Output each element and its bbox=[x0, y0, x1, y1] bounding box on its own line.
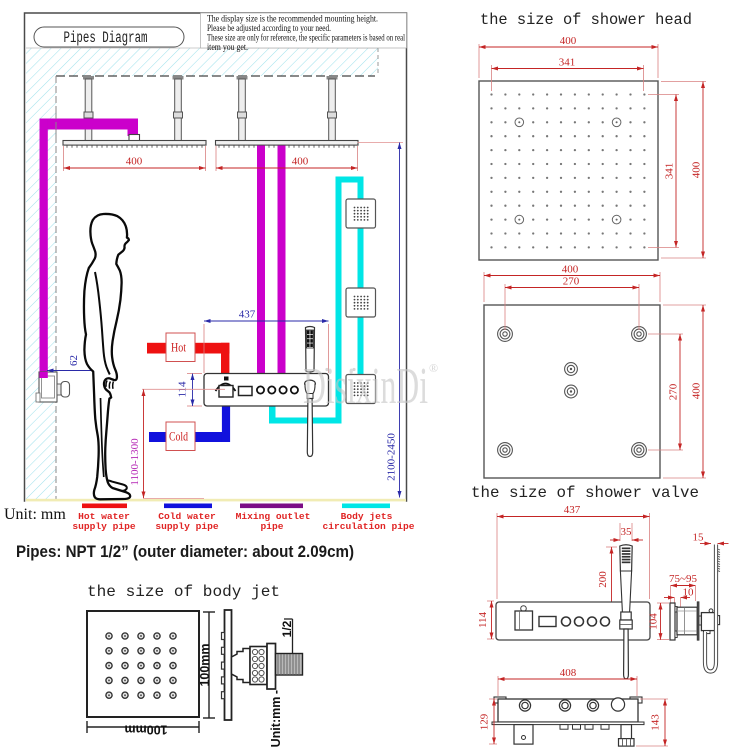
svg-text:supply pipe: supply pipe bbox=[72, 521, 136, 532]
svg-text:Cold: Cold bbox=[169, 430, 189, 444]
svg-text:15: 15 bbox=[693, 532, 705, 544]
svg-text:pipe: pipe bbox=[260, 521, 283, 532]
svg-text:400: 400 bbox=[560, 35, 577, 47]
svg-text:1/2: 1/2 bbox=[280, 620, 294, 637]
svg-text:408: 408 bbox=[560, 667, 577, 679]
svg-text:Unit: mm: Unit: mm bbox=[4, 506, 66, 523]
svg-text:DisixinDi: DisixinDi bbox=[303, 358, 428, 415]
svg-text:-: - bbox=[269, 690, 283, 694]
svg-text:270: 270 bbox=[668, 383, 680, 400]
svg-text:Unit:mm: Unit:mm bbox=[269, 697, 283, 748]
svg-text:Hot: Hot bbox=[171, 341, 186, 355]
svg-text:100mm: 100mm bbox=[124, 723, 167, 737]
svg-text:129: 129 bbox=[479, 713, 491, 730]
svg-text:2100-2450: 2100-2450 bbox=[386, 433, 398, 481]
svg-text:400: 400 bbox=[562, 264, 579, 276]
svg-text:341: 341 bbox=[664, 163, 676, 180]
svg-text:437: 437 bbox=[564, 504, 581, 516]
svg-text:75~95: 75~95 bbox=[669, 573, 697, 585]
svg-text:341: 341 bbox=[559, 57, 576, 69]
svg-text:circulation pipe: circulation pipe bbox=[322, 521, 414, 532]
svg-text:10: 10 bbox=[683, 587, 695, 599]
svg-text:Pipes: NPT 1/2” (outer diamete: Pipes: NPT 1/2” (outer diameter: about 2… bbox=[16, 543, 354, 561]
svg-text:item you get.: item you get. bbox=[207, 42, 248, 52]
svg-text:1100-1300: 1100-1300 bbox=[129, 438, 141, 486]
svg-text:62: 62 bbox=[68, 355, 80, 366]
svg-text:the size of shower head: the size of shower head bbox=[480, 11, 692, 29]
svg-text:Pipes Diagram: Pipes Diagram bbox=[64, 29, 148, 47]
svg-text:400: 400 bbox=[691, 382, 703, 399]
svg-text:400: 400 bbox=[292, 156, 309, 168]
svg-text:the size of body jet: the size of body jet bbox=[87, 583, 280, 601]
svg-text:270: 270 bbox=[563, 276, 580, 288]
svg-text:100mm: 100mm bbox=[198, 643, 212, 686]
svg-text:143: 143 bbox=[650, 714, 662, 731]
svg-text:400: 400 bbox=[126, 156, 143, 168]
svg-text:35: 35 bbox=[621, 526, 633, 538]
svg-text:437: 437 bbox=[239, 309, 256, 321]
svg-text:®: ® bbox=[429, 361, 438, 375]
svg-text:200: 200 bbox=[597, 571, 609, 588]
svg-text:supply pipe: supply pipe bbox=[155, 521, 219, 532]
svg-text:104: 104 bbox=[648, 613, 660, 630]
svg-text:the size of shower valve: the size of shower valve bbox=[471, 484, 699, 502]
svg-text:400: 400 bbox=[691, 161, 703, 178]
svg-text:114: 114 bbox=[477, 611, 489, 628]
